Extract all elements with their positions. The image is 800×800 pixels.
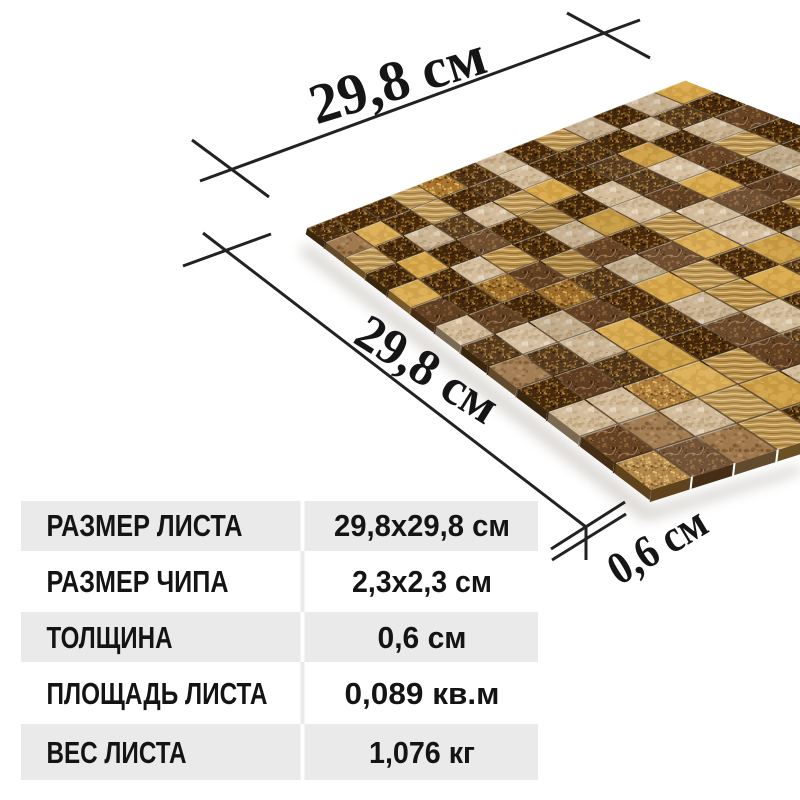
svg-text:РАЗМЕР ЧИПА: РАЗМЕР ЧИПА [47, 564, 229, 599]
svg-text:2,3x2,3 см: 2,3x2,3 см [352, 564, 492, 599]
svg-text:0,089 кв.м: 0,089 кв.м [345, 676, 500, 711]
svg-text:ВЕС ЛИСТА: ВЕС ЛИСТА [47, 735, 187, 770]
svg-text:ПЛОЩАДЬ ЛИСТА: ПЛОЩАДЬ ЛИСТА [47, 676, 268, 711]
svg-text:РАЗМЕР ЛИСТА: РАЗМЕР ЛИСТА [47, 508, 243, 543]
svg-text:0,6 см: 0,6 см [378, 620, 467, 655]
svg-text:ТОЛЩИНА: ТОЛЩИНА [47, 620, 173, 655]
svg-text:29,8 см: 29,8 см [302, 24, 494, 137]
svg-text:29,8x29,8 см: 29,8x29,8 см [334, 508, 510, 543]
svg-text:1,076 кг: 1,076 кг [369, 735, 475, 770]
